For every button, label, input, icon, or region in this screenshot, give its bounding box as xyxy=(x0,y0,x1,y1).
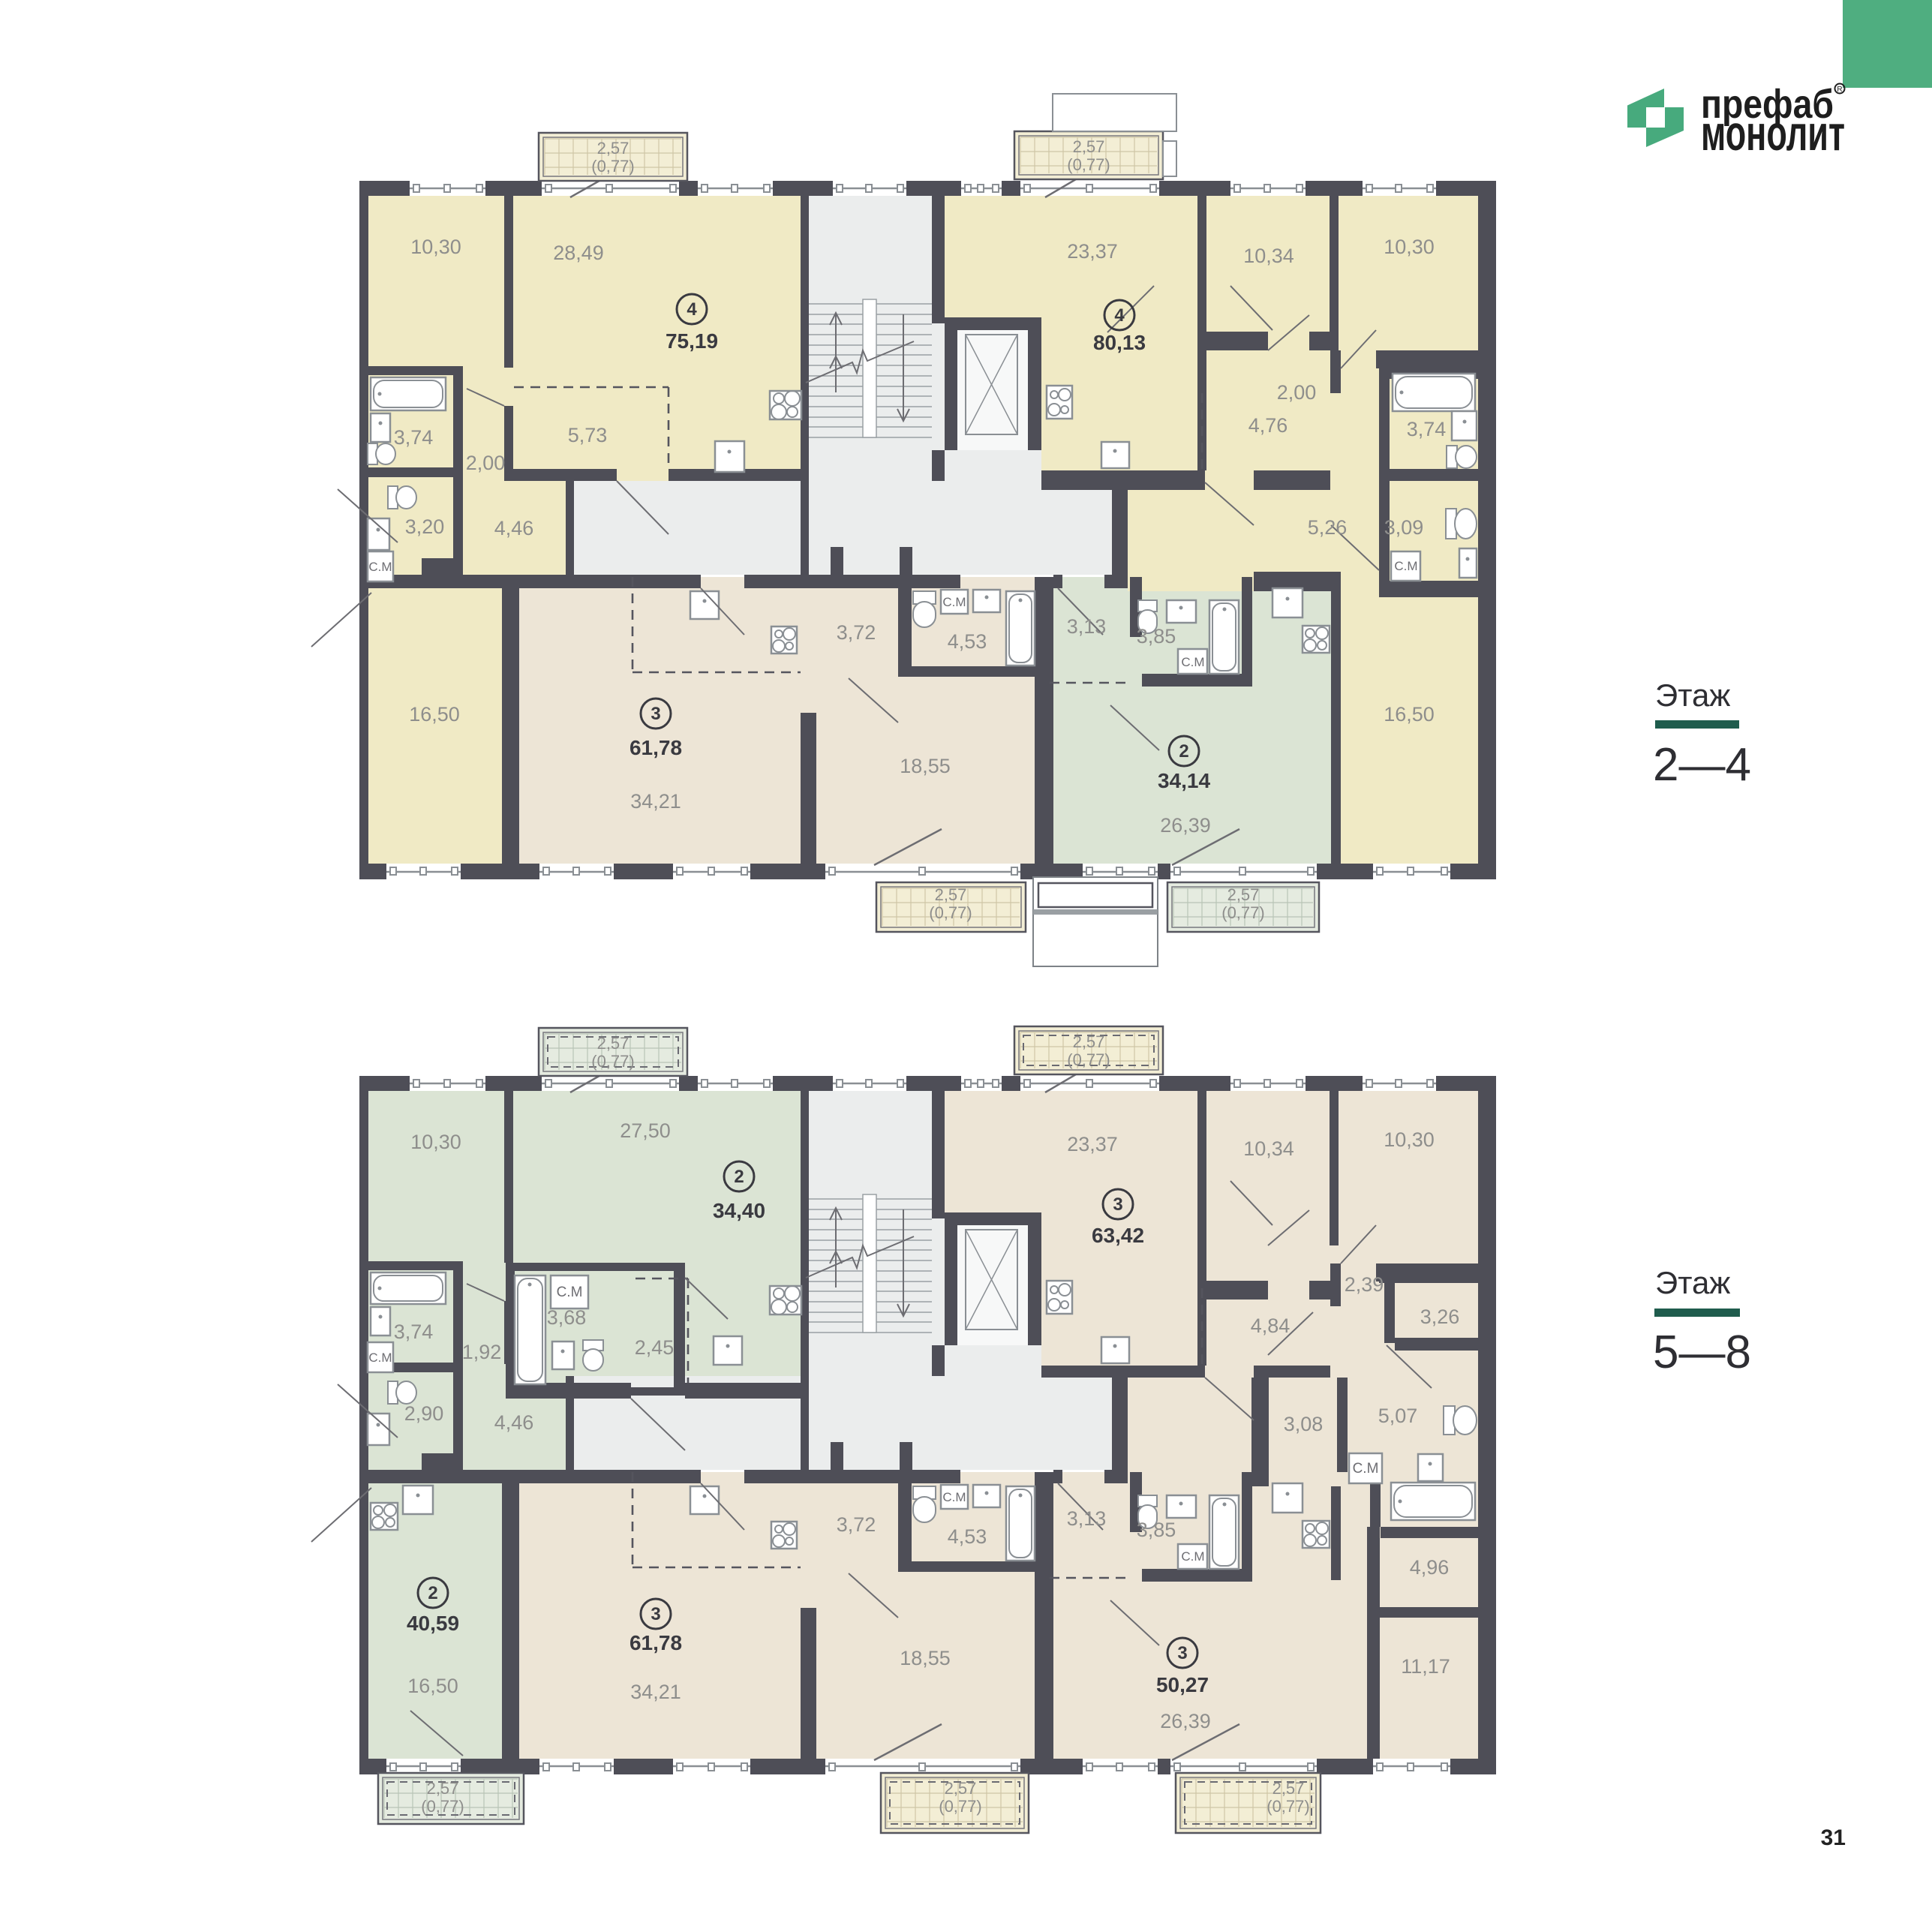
svg-text:4: 4 xyxy=(687,299,697,320)
svg-text:2,45: 2,45 xyxy=(635,1336,675,1359)
svg-text:80,13: 80,13 xyxy=(1093,331,1146,354)
svg-text:(0,77): (0,77) xyxy=(421,1797,464,1816)
svg-text:2,57: 2,57 xyxy=(1073,1032,1105,1051)
svg-text:16,50: 16,50 xyxy=(1384,703,1435,726)
svg-text:3,20: 3,20 xyxy=(405,515,445,538)
svg-text:2,00: 2,00 xyxy=(1277,381,1317,404)
svg-text:3,68: 3,68 xyxy=(547,1306,587,1329)
svg-text:4,46: 4,46 xyxy=(494,1411,534,1434)
svg-text:2,57: 2,57 xyxy=(945,1779,977,1798)
svg-text:R: R xyxy=(1837,86,1842,94)
svg-text:3: 3 xyxy=(651,1604,660,1624)
svg-text:4,53: 4,53 xyxy=(948,1525,987,1548)
svg-text:10,34: 10,34 xyxy=(1243,245,1294,267)
svg-text:С.М: С.М xyxy=(1394,559,1417,573)
svg-text:3,85: 3,85 xyxy=(1137,625,1176,648)
svg-text:61,78: 61,78 xyxy=(629,736,682,759)
svg-text:31: 31 xyxy=(1821,1825,1846,1850)
svg-text:5,07: 5,07 xyxy=(1378,1405,1418,1427)
svg-text:(0,77): (0,77) xyxy=(591,157,634,176)
svg-text:28,49: 28,49 xyxy=(553,242,604,264)
svg-text:4,84: 4,84 xyxy=(1251,1315,1291,1337)
svg-text:4,76: 4,76 xyxy=(1248,414,1288,437)
svg-text:4,53: 4,53 xyxy=(948,630,987,653)
svg-text:18,55: 18,55 xyxy=(900,1647,951,1669)
svg-text:2: 2 xyxy=(1179,741,1188,762)
svg-text:С.М: С.М xyxy=(368,560,392,574)
svg-text:18,55: 18,55 xyxy=(900,755,951,777)
svg-text:5—8: 5—8 xyxy=(1653,1327,1751,1378)
svg-text:75,19: 75,19 xyxy=(666,329,718,353)
svg-text:34,14: 34,14 xyxy=(1158,769,1210,792)
svg-text:2,57: 2,57 xyxy=(935,885,967,904)
svg-text:С.М: С.М xyxy=(1353,1461,1379,1477)
svg-text:3,13: 3,13 xyxy=(1067,615,1107,638)
svg-text:63,42: 63,42 xyxy=(1092,1224,1144,1247)
svg-text:4,96: 4,96 xyxy=(1410,1556,1450,1579)
svg-text:3,13: 3,13 xyxy=(1067,1507,1107,1530)
svg-text:50,27: 50,27 xyxy=(1156,1673,1209,1696)
svg-text:10,34: 10,34 xyxy=(1243,1137,1294,1160)
svg-text:11,17: 11,17 xyxy=(1401,1655,1450,1678)
svg-text:С.М: С.М xyxy=(1181,1549,1204,1564)
svg-text:С.М: С.М xyxy=(1181,655,1204,669)
svg-text:16,50: 16,50 xyxy=(409,703,460,726)
svg-text:4,46: 4,46 xyxy=(494,517,534,539)
svg-text:2,57: 2,57 xyxy=(597,139,629,158)
svg-text:2,57: 2,57 xyxy=(427,1779,459,1798)
svg-text:(0,77): (0,77) xyxy=(939,1797,981,1816)
svg-text:3: 3 xyxy=(1113,1194,1122,1215)
svg-text:2,57: 2,57 xyxy=(1272,1779,1305,1798)
svg-text:3: 3 xyxy=(1177,1643,1187,1663)
svg-text:26,39: 26,39 xyxy=(1160,814,1211,837)
svg-text:5,26: 5,26 xyxy=(1308,516,1348,539)
svg-text:2,57: 2,57 xyxy=(1227,885,1260,904)
svg-text:монолит: монолит xyxy=(1701,105,1845,161)
svg-text:3,74: 3,74 xyxy=(394,426,434,449)
svg-text:34,21: 34,21 xyxy=(630,1681,681,1703)
svg-text:С.М: С.М xyxy=(557,1284,583,1300)
svg-text:4: 4 xyxy=(1114,305,1125,326)
svg-text:3,85: 3,85 xyxy=(1137,1519,1176,1541)
svg-text:С.М: С.М xyxy=(942,595,966,609)
svg-text:Этаж: Этаж xyxy=(1655,678,1730,713)
svg-text:2: 2 xyxy=(734,1167,744,1187)
svg-text:2,39: 2,39 xyxy=(1345,1273,1384,1296)
svg-text:61,78: 61,78 xyxy=(629,1631,682,1654)
svg-text:Этаж: Этаж xyxy=(1655,1265,1730,1300)
svg-text:С.М: С.М xyxy=(942,1490,966,1504)
svg-text:(0,77): (0,77) xyxy=(1067,1050,1110,1069)
svg-text:34,21: 34,21 xyxy=(630,790,681,813)
svg-text:23,37: 23,37 xyxy=(1067,240,1118,263)
svg-text:С.М: С.М xyxy=(368,1351,392,1365)
svg-text:3: 3 xyxy=(651,704,660,724)
svg-text:3,26: 3,26 xyxy=(1420,1306,1460,1328)
svg-text:2,57: 2,57 xyxy=(597,1034,629,1053)
svg-text:1,92: 1,92 xyxy=(462,1341,502,1363)
svg-text:10,30: 10,30 xyxy=(1384,236,1435,258)
svg-text:3,08: 3,08 xyxy=(1284,1413,1324,1435)
svg-text:2,90: 2,90 xyxy=(404,1402,444,1425)
svg-text:3,74: 3,74 xyxy=(1407,418,1447,440)
svg-text:(0,77): (0,77) xyxy=(1266,1797,1309,1816)
svg-text:10,30: 10,30 xyxy=(410,236,461,258)
svg-text:2,57: 2,57 xyxy=(1073,137,1105,156)
svg-text:5,73: 5,73 xyxy=(568,424,608,446)
svg-text:3,72: 3,72 xyxy=(837,1513,876,1536)
svg-text:23,37: 23,37 xyxy=(1067,1133,1118,1155)
svg-text:3,72: 3,72 xyxy=(837,621,876,644)
svg-text:2,00: 2,00 xyxy=(466,452,506,474)
svg-text:34,40: 34,40 xyxy=(713,1199,765,1222)
svg-text:3,74: 3,74 xyxy=(394,1321,434,1343)
svg-text:10,30: 10,30 xyxy=(410,1131,461,1153)
svg-text:40,59: 40,59 xyxy=(407,1612,459,1635)
svg-text:16,50: 16,50 xyxy=(407,1675,458,1697)
svg-text:(0,77): (0,77) xyxy=(929,903,972,922)
svg-text:(0,77): (0,77) xyxy=(591,1052,634,1071)
svg-text:3,09: 3,09 xyxy=(1384,516,1424,539)
svg-text:(0,77): (0,77) xyxy=(1221,903,1264,922)
svg-text:2: 2 xyxy=(428,1583,437,1603)
svg-text:10,30: 10,30 xyxy=(1384,1128,1435,1151)
svg-text:27,50: 27,50 xyxy=(620,1119,671,1142)
svg-text:(0,77): (0,77) xyxy=(1067,155,1110,174)
svg-text:26,39: 26,39 xyxy=(1160,1710,1211,1732)
svg-text:2—4: 2—4 xyxy=(1653,739,1751,791)
